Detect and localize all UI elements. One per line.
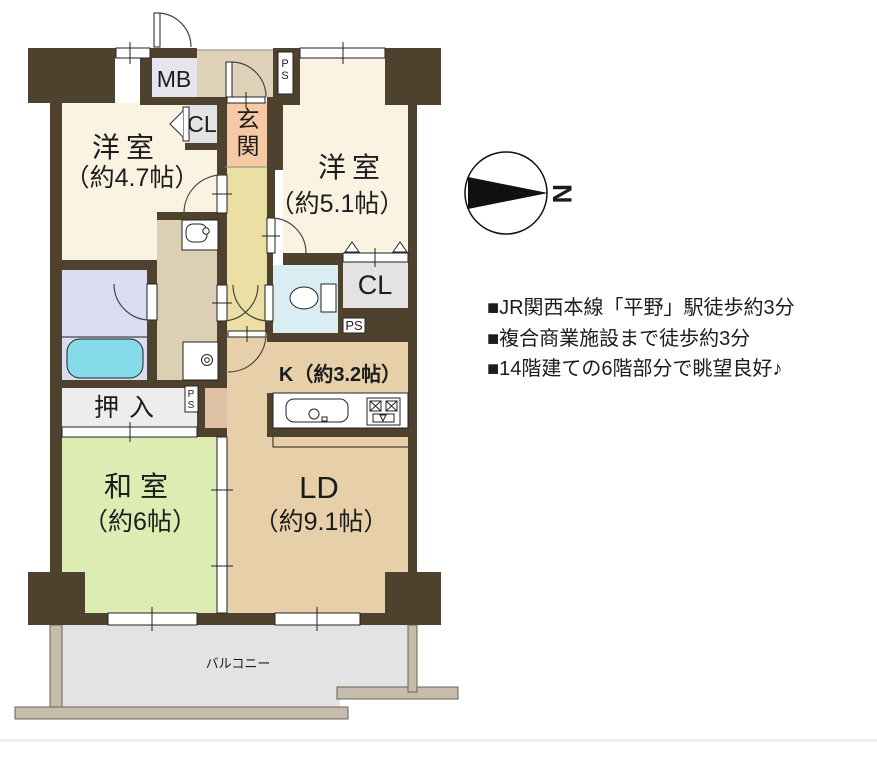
ps-mid-label: PS — [186, 389, 197, 411]
wall-toilet-right — [338, 265, 343, 333]
western-room1-name: 洋室 — [92, 132, 160, 163]
kitchen-faucet-icon — [309, 409, 319, 419]
wall-hall-left-upper — [217, 97, 227, 175]
kitchen-faucet-handle-icon — [322, 417, 327, 421]
bathtub — [67, 339, 143, 378]
washitsu-size: （約6帖） — [83, 508, 197, 536]
mb-door-leaf — [154, 13, 160, 47]
balcony-fence-step — [337, 687, 458, 699]
note-line-2: ■複合商業施設まで徒歩約3分 — [487, 327, 750, 350]
wall-under-ps — [343, 333, 365, 342]
wall-hall-right-mid — [267, 253, 273, 285]
kitchen-label: K（約3.2帖） — [279, 362, 401, 386]
balcony-fence-left — [50, 625, 62, 719]
closet-small-label: CL — [187, 111, 217, 137]
floor-plan-svg: N ■JR関西本線「平野」駅徒歩約3分 ■複合商業施設まで徒歩約3分 ■14階建… — [0, 0, 877, 767]
toilet-tank-icon — [321, 284, 336, 312]
entrance-porch-floor — [197, 50, 273, 97]
mb-label: MB — [157, 66, 192, 92]
balcony-fence-bottom — [15, 707, 348, 719]
wall-under-toilet — [267, 333, 343, 342]
hallway-floor — [225, 167, 267, 331]
wall-under-mb — [140, 97, 227, 105]
note-line-1: ■JR関西本線「平野」駅徒歩約3分 — [487, 296, 795, 319]
page-divider-line — [0, 739, 877, 742]
wall-right-of-ps — [365, 318, 408, 342]
washer-drain-inner-icon — [205, 358, 210, 363]
wall-washroom-top — [157, 212, 218, 220]
ps-top-label: PS — [279, 58, 291, 82]
toilet-bowl-icon — [290, 287, 318, 309]
compass-north-label: N — [547, 184, 577, 204]
washitsu-name: 和室 — [104, 471, 176, 502]
notes-block: ■JR関西本線「平野」駅徒歩約3分 ■複合商業施設まで徒歩約3分 ■14階建ての… — [487, 296, 795, 380]
balcony-label: バルコニー — [206, 656, 271, 671]
wall-left — [50, 103, 62, 572]
wall-mb-left — [140, 58, 152, 97]
western-room1-size: （約4.7帖） — [65, 164, 200, 192]
washitsu-ld-partition — [217, 437, 227, 613]
wall-under-step-block — [205, 428, 227, 437]
wall-bath-top — [62, 260, 157, 270]
note-line-3: ■14階建ての6階部分で眺望良好♪ — [487, 357, 782, 380]
ld-size: （約9.1帖） — [254, 508, 389, 536]
floor-plan-image: N ■JR関西本線「平野」駅徒歩約3分 ■複合商業施設まで徒歩約3分 ■14階建… — [0, 0, 877, 767]
wall-under-counter — [267, 428, 408, 437]
ps-kitchen-label: PS — [345, 318, 363, 333]
oshiire-label: 押入 — [94, 394, 164, 422]
wall-genkan-right — [267, 97, 283, 170]
ld-name: LD — [299, 470, 339, 505]
western-room2-size: （約5.1帖） — [270, 190, 405, 218]
genkan-label: 玄関 — [233, 107, 259, 161]
balcony-fence-right — [408, 625, 417, 692]
wall-toilet-top — [283, 253, 343, 265]
closet-large-label: CL — [358, 270, 393, 300]
wall-counter-left-stub — [267, 393, 273, 428]
western-room2-name: 洋室 — [318, 152, 386, 183]
washbasin-faucet-icon — [203, 228, 209, 234]
wall-right — [408, 105, 417, 572]
window-top-left — [116, 48, 150, 58]
wall-under-closet-large — [343, 308, 408, 318]
entrance-door-leaf — [226, 62, 232, 97]
toilet-door-leaf — [265, 285, 273, 321]
hall-step-block — [205, 388, 227, 428]
wall-under-closet-small — [185, 143, 225, 150]
bath-door-leaf — [147, 284, 157, 320]
corner-column-top-right — [385, 48, 441, 105]
